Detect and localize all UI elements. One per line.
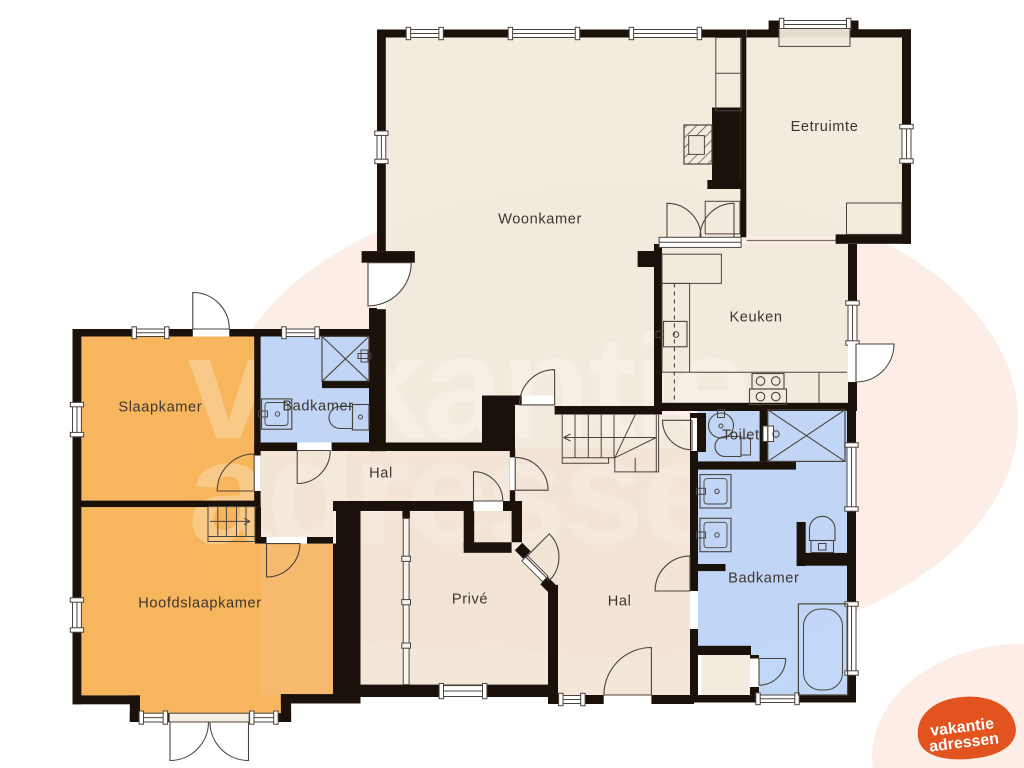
svg-text:Hoofdslaapkamer: Hoofdslaapkamer xyxy=(138,596,261,612)
svg-text:Hal: Hal xyxy=(608,594,632,610)
svg-text:Hal: Hal xyxy=(369,466,393,482)
svg-text:Woonkamer: Woonkamer xyxy=(498,212,582,228)
svg-text:Keuken: Keuken xyxy=(729,310,782,326)
svg-text:Toilet: Toilet xyxy=(722,428,760,444)
svg-text:Slaapkamer: Slaapkamer xyxy=(118,400,202,416)
svg-text:Eetruimte: Eetruimte xyxy=(791,119,859,135)
svg-text:Badkamer: Badkamer xyxy=(282,399,353,415)
svg-text:Badkamer: Badkamer xyxy=(728,571,799,587)
svg-text:Privé: Privé xyxy=(452,592,488,608)
